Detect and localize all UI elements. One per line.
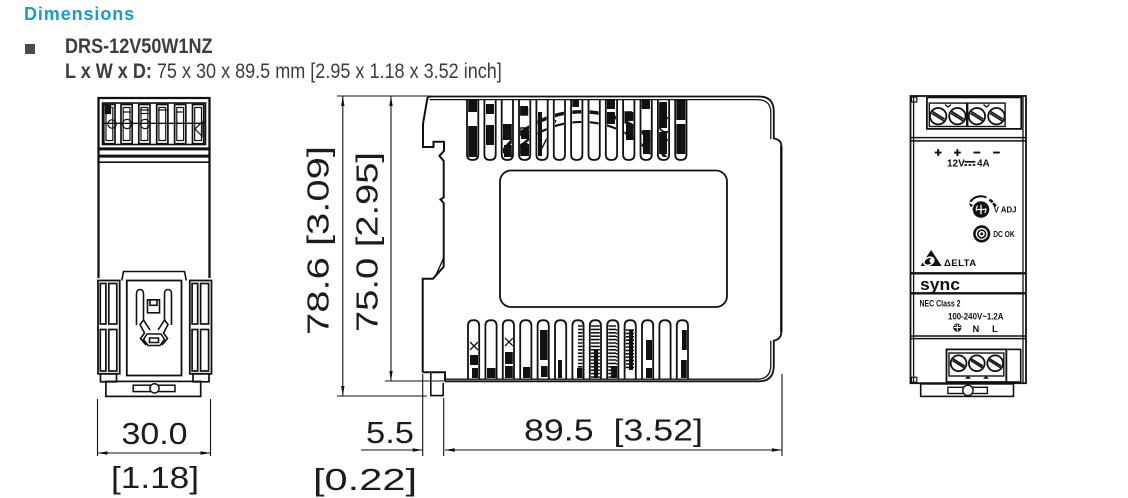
svg-text:100-240V~1.2A: 100-240V~1.2A (948, 311, 1004, 322)
svg-text:L: L (992, 323, 998, 334)
svg-text:sync: sync (920, 276, 960, 294)
svg-text:12V: 12V (947, 159, 965, 170)
svg-text:30.0: 30.0 (122, 416, 188, 451)
svg-text:NEC Class 2: NEC Class 2 (920, 299, 961, 309)
svg-text:[1.18]: [1.18] (111, 460, 199, 495)
svg-text:78.6 [3.09]: 78.6 [3.09] (301, 146, 336, 335)
svg-text:N: N (973, 323, 980, 334)
svg-text:4A: 4A (977, 159, 990, 170)
svg-text:75.0 [2.95]: 75.0 [2.95] (350, 152, 385, 332)
svg-text:[0.22]: [0.22] (313, 462, 417, 497)
svg-text:5.5: 5.5 (366, 415, 414, 450)
svg-text:V ADJ: V ADJ (994, 206, 1017, 215)
svg-text:ΔELTA: ΔELTA (944, 258, 977, 269)
svg-text:89.5 [3.52]: 89.5 [3.52] (524, 413, 703, 448)
svg-text:DC OK: DC OK (993, 230, 1015, 239)
